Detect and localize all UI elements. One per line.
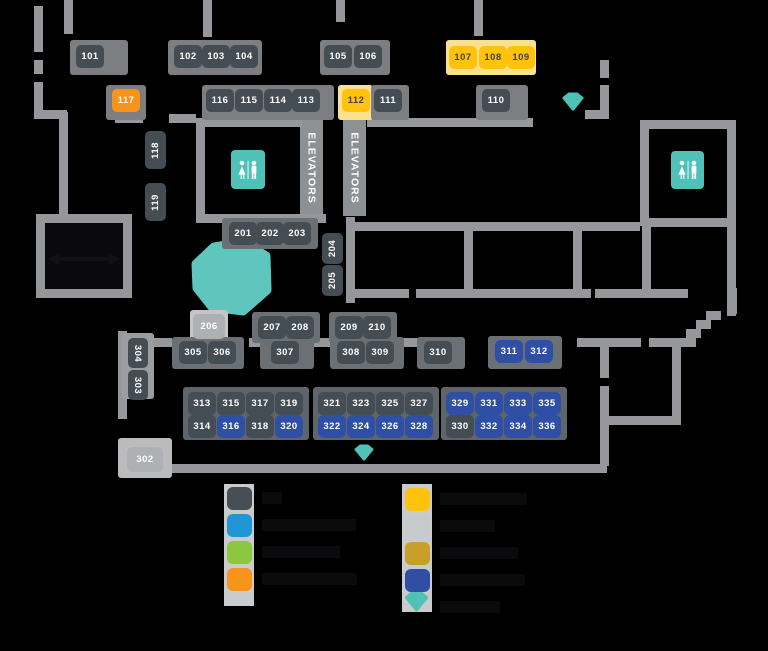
legend-label-text bbox=[440, 520, 495, 532]
booth-309: 309 bbox=[366, 341, 394, 364]
wall bbox=[585, 110, 609, 119]
booth-number: 309 bbox=[371, 347, 388, 358]
booth-number: 115 bbox=[241, 95, 258, 106]
wall bbox=[573, 222, 582, 298]
booth-number: 307 bbox=[276, 347, 293, 358]
booth-317: 317 bbox=[246, 392, 274, 415]
booth-201: 201 bbox=[229, 222, 257, 245]
booth-number: 310 bbox=[429, 347, 446, 358]
booth-329: 329 bbox=[446, 392, 474, 415]
booth-number: 111 bbox=[380, 95, 396, 106]
booth-321: 321 bbox=[318, 392, 346, 415]
wall bbox=[672, 347, 681, 425]
wall bbox=[464, 222, 473, 298]
wall bbox=[581, 222, 640, 231]
wall bbox=[706, 311, 721, 320]
wall bbox=[649, 338, 696, 347]
legend-swatch bbox=[405, 569, 430, 592]
wall bbox=[474, 0, 483, 36]
booth-number: 335 bbox=[538, 398, 555, 409]
booth-307: 307 bbox=[271, 341, 299, 364]
booth-number: 112 bbox=[348, 95, 365, 106]
elevators-shaft-right: ELEVATORS bbox=[343, 119, 366, 216]
booth-318: 318 bbox=[246, 415, 274, 438]
booth-number: 324 bbox=[352, 421, 369, 432]
booth-number: 313 bbox=[193, 398, 210, 409]
booth-number: 325 bbox=[381, 398, 398, 409]
booth-number: 110 bbox=[488, 95, 505, 106]
legend-swatch bbox=[227, 514, 252, 537]
booth-number: 331 bbox=[480, 398, 497, 409]
booth-number: 104 bbox=[235, 51, 252, 62]
legend-swatch bbox=[405, 515, 430, 538]
booth-number: 117 bbox=[118, 95, 135, 106]
booth-320: 320 bbox=[275, 415, 303, 438]
booth-number: 319 bbox=[280, 398, 297, 409]
booth-112: 112 bbox=[342, 89, 370, 112]
booth-number: 323 bbox=[352, 398, 369, 409]
booth-number: 329 bbox=[451, 398, 468, 409]
escalator-room bbox=[36, 214, 132, 298]
booth-102: 102 bbox=[174, 45, 202, 68]
wall bbox=[642, 226, 651, 290]
legend-label-text bbox=[440, 547, 518, 559]
booth-number: 205 bbox=[327, 272, 338, 289]
booth-number: 114 bbox=[270, 95, 287, 106]
legend-swatch bbox=[227, 487, 252, 510]
wall bbox=[336, 0, 345, 22]
booth-208: 208 bbox=[286, 316, 314, 339]
booth-117: 117 bbox=[112, 89, 140, 112]
elevators-label: ELEVATORS bbox=[306, 132, 318, 203]
restroom-icon bbox=[671, 151, 704, 189]
wall bbox=[203, 0, 212, 37]
booth-number: 311 bbox=[501, 346, 518, 357]
booth-number: 332 bbox=[480, 421, 497, 432]
booth-103: 103 bbox=[202, 45, 230, 68]
booth-number: 303 bbox=[132, 376, 143, 393]
booth-number: 116 bbox=[212, 95, 229, 106]
wall bbox=[640, 120, 649, 226]
booth-number: 312 bbox=[530, 346, 547, 357]
booth-207: 207 bbox=[258, 316, 286, 339]
legend-swatch bbox=[227, 568, 252, 591]
feature-area-shape bbox=[190, 238, 278, 318]
legend-label-text bbox=[262, 546, 340, 558]
booth-316: 316 bbox=[217, 415, 245, 438]
wall bbox=[64, 0, 73, 34]
wall bbox=[169, 114, 196, 123]
wall bbox=[150, 464, 607, 473]
booth-209: 209 bbox=[335, 316, 363, 339]
booth-335: 335 bbox=[533, 392, 561, 415]
booth-number: 105 bbox=[329, 51, 346, 62]
booth-number: 107 bbox=[454, 52, 471, 63]
booth-324: 324 bbox=[347, 415, 375, 438]
booth-328: 328 bbox=[405, 415, 433, 438]
booth-number: 327 bbox=[410, 398, 427, 409]
water-station-icon bbox=[353, 444, 375, 462]
booth-202: 202 bbox=[256, 222, 284, 245]
wall bbox=[472, 222, 573, 231]
wall bbox=[600, 60, 609, 78]
booth-334: 334 bbox=[504, 415, 532, 438]
booth-number: 326 bbox=[381, 421, 398, 432]
booth-number: 322 bbox=[323, 421, 340, 432]
booth-number: 305 bbox=[184, 347, 201, 358]
wall bbox=[34, 60, 43, 74]
booth-number: 314 bbox=[193, 421, 210, 432]
wall bbox=[577, 338, 641, 347]
booth-303: 303 bbox=[128, 370, 148, 400]
booth-number: 318 bbox=[251, 421, 268, 432]
legend-label-text bbox=[262, 573, 357, 585]
legend-water-station-icon bbox=[403, 591, 430, 613]
booth-111: 111 bbox=[374, 89, 402, 112]
wall bbox=[196, 118, 205, 223]
booth-number: 102 bbox=[179, 51, 196, 62]
booth-332: 332 bbox=[475, 415, 503, 438]
booth-number: 103 bbox=[207, 51, 224, 62]
booth-number: 315 bbox=[222, 398, 239, 409]
wall bbox=[727, 120, 736, 316]
booth-322: 322 bbox=[318, 415, 346, 438]
booth-336: 336 bbox=[533, 415, 561, 438]
legend-swatch bbox=[405, 488, 430, 511]
booth-number: 207 bbox=[263, 322, 280, 333]
booth-number: 333 bbox=[509, 398, 526, 409]
booth-number: 304 bbox=[132, 344, 143, 361]
booth-number: 119 bbox=[150, 194, 161, 211]
booth-114: 114 bbox=[264, 89, 292, 112]
booth-119: 119 bbox=[145, 183, 166, 221]
wall bbox=[600, 386, 609, 466]
legend-swatch bbox=[405, 542, 430, 565]
wall bbox=[607, 416, 673, 425]
booth-203: 203 bbox=[283, 222, 311, 245]
booth-118: 118 bbox=[145, 131, 166, 169]
wall bbox=[352, 222, 464, 231]
escalator-arrow-icon bbox=[45, 223, 123, 289]
booth-number: 203 bbox=[288, 228, 305, 239]
restroom-icon bbox=[231, 150, 265, 189]
booth-326: 326 bbox=[376, 415, 404, 438]
booth-number: 328 bbox=[410, 421, 427, 432]
wall bbox=[600, 85, 609, 113]
booth-number: 210 bbox=[368, 322, 385, 333]
elevators-shaft-left: ELEVATORS bbox=[300, 119, 323, 216]
booth-number: 336 bbox=[538, 421, 555, 432]
booth-308: 308 bbox=[337, 341, 365, 364]
wall bbox=[686, 329, 701, 338]
booth-number: 209 bbox=[340, 322, 357, 333]
booth-115: 115 bbox=[235, 89, 263, 112]
booth-number: 302 bbox=[136, 454, 153, 465]
booth-number: 334 bbox=[509, 421, 526, 432]
booth-number: 201 bbox=[234, 228, 251, 239]
wall bbox=[728, 288, 737, 314]
booth-106: 106 bbox=[354, 45, 382, 68]
legend-label-text bbox=[262, 492, 282, 504]
booth-number: 306 bbox=[213, 347, 230, 358]
wall bbox=[416, 289, 591, 298]
legend-label-text bbox=[440, 574, 525, 586]
booth-205: 205 bbox=[322, 265, 343, 296]
booth-315: 315 bbox=[217, 392, 245, 415]
booth-number: 109 bbox=[512, 52, 529, 63]
wall bbox=[595, 289, 688, 298]
booth-323: 323 bbox=[347, 392, 375, 415]
booth-306: 306 bbox=[208, 341, 236, 364]
legend-label-text bbox=[262, 519, 356, 531]
booth-330: 330 bbox=[446, 415, 474, 438]
booth-304: 304 bbox=[128, 338, 148, 368]
booth-101: 101 bbox=[76, 45, 104, 68]
wall bbox=[696, 320, 711, 329]
wall bbox=[352, 289, 409, 298]
booth-number: 202 bbox=[261, 228, 278, 239]
booth-105: 105 bbox=[324, 45, 352, 68]
booth-number: 106 bbox=[359, 51, 376, 62]
wall bbox=[34, 6, 43, 52]
booth-310: 310 bbox=[424, 341, 452, 364]
booth-116: 116 bbox=[206, 89, 234, 112]
wall bbox=[640, 120, 736, 129]
booth-number: 204 bbox=[327, 240, 338, 257]
booth-number: 101 bbox=[81, 51, 98, 62]
booth-number: 108 bbox=[484, 52, 501, 63]
booth-305: 305 bbox=[179, 341, 207, 364]
wall bbox=[600, 347, 609, 378]
booth-314: 314 bbox=[188, 415, 216, 438]
booth-311: 311 bbox=[495, 340, 523, 363]
water-station-icon bbox=[561, 92, 585, 112]
booth-302: 302 bbox=[127, 447, 163, 472]
booth-number: 317 bbox=[251, 398, 268, 409]
booth-number: 308 bbox=[342, 347, 359, 358]
booth-number: 118 bbox=[150, 142, 161, 159]
legend-label-text bbox=[440, 601, 500, 613]
booth-313: 313 bbox=[188, 392, 216, 415]
booth-312: 312 bbox=[525, 340, 553, 363]
booth-number: 113 bbox=[298, 95, 315, 106]
booth-319: 319 bbox=[275, 392, 303, 415]
booth-number: 320 bbox=[280, 421, 297, 432]
booth-333: 333 bbox=[504, 392, 532, 415]
booth-325: 325 bbox=[376, 392, 404, 415]
wall bbox=[648, 218, 727, 227]
booth-108: 108 bbox=[479, 46, 507, 69]
booth-number: 321 bbox=[323, 398, 340, 409]
booth-327: 327 bbox=[405, 392, 433, 415]
elevators-label: ELEVATORS bbox=[349, 132, 361, 203]
booth-number: 316 bbox=[222, 421, 239, 432]
booth-331: 331 bbox=[475, 392, 503, 415]
booth-204: 204 bbox=[322, 233, 343, 264]
wall bbox=[34, 82, 43, 112]
wall bbox=[59, 112, 68, 222]
booth-210: 210 bbox=[363, 316, 391, 339]
booth-113: 113 bbox=[292, 89, 320, 112]
floor-plan: ELEVATORS ELEVATORS bbox=[0, 0, 768, 651]
booth-number: 330 bbox=[451, 421, 468, 432]
booth-number: 206 bbox=[200, 321, 217, 332]
booth-109: 109 bbox=[507, 46, 535, 69]
legend-swatch bbox=[227, 541, 252, 564]
booth-107: 107 bbox=[449, 46, 477, 69]
booth-110: 110 bbox=[482, 89, 510, 112]
legend-label-text bbox=[440, 493, 527, 505]
booth-number: 208 bbox=[291, 322, 308, 333]
booth-104: 104 bbox=[230, 45, 258, 68]
booth-206: 206 bbox=[193, 314, 225, 339]
